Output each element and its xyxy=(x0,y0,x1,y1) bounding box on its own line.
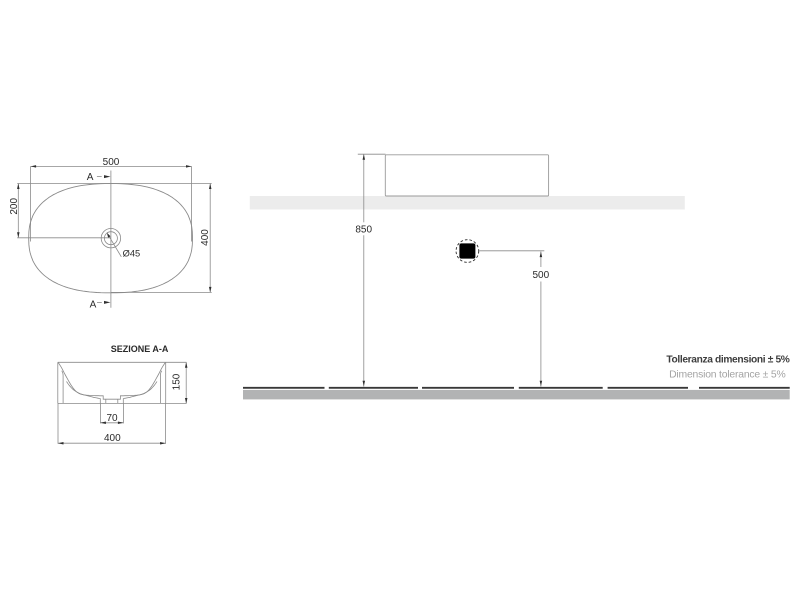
svg-text:Tolleranza dimensioni ± 5%: Tolleranza dimensioni ± 5% xyxy=(666,355,789,366)
svg-text:SEZIONE A-A: SEZIONE A-A xyxy=(111,344,169,354)
svg-text:400: 400 xyxy=(104,433,121,444)
svg-text:Ø45: Ø45 xyxy=(123,248,141,258)
svg-text:A: A xyxy=(90,299,97,310)
svg-text:150: 150 xyxy=(172,373,183,390)
svg-text:500: 500 xyxy=(103,157,120,168)
svg-text:A: A xyxy=(87,172,94,183)
svg-text:200: 200 xyxy=(9,198,20,215)
svg-text:400: 400 xyxy=(200,229,211,246)
svg-text:70: 70 xyxy=(106,413,118,424)
svg-text:500: 500 xyxy=(532,270,549,281)
svg-text:850: 850 xyxy=(355,225,372,236)
svg-text:Dimension tolerance ± 5%: Dimension tolerance ± 5% xyxy=(669,369,785,380)
